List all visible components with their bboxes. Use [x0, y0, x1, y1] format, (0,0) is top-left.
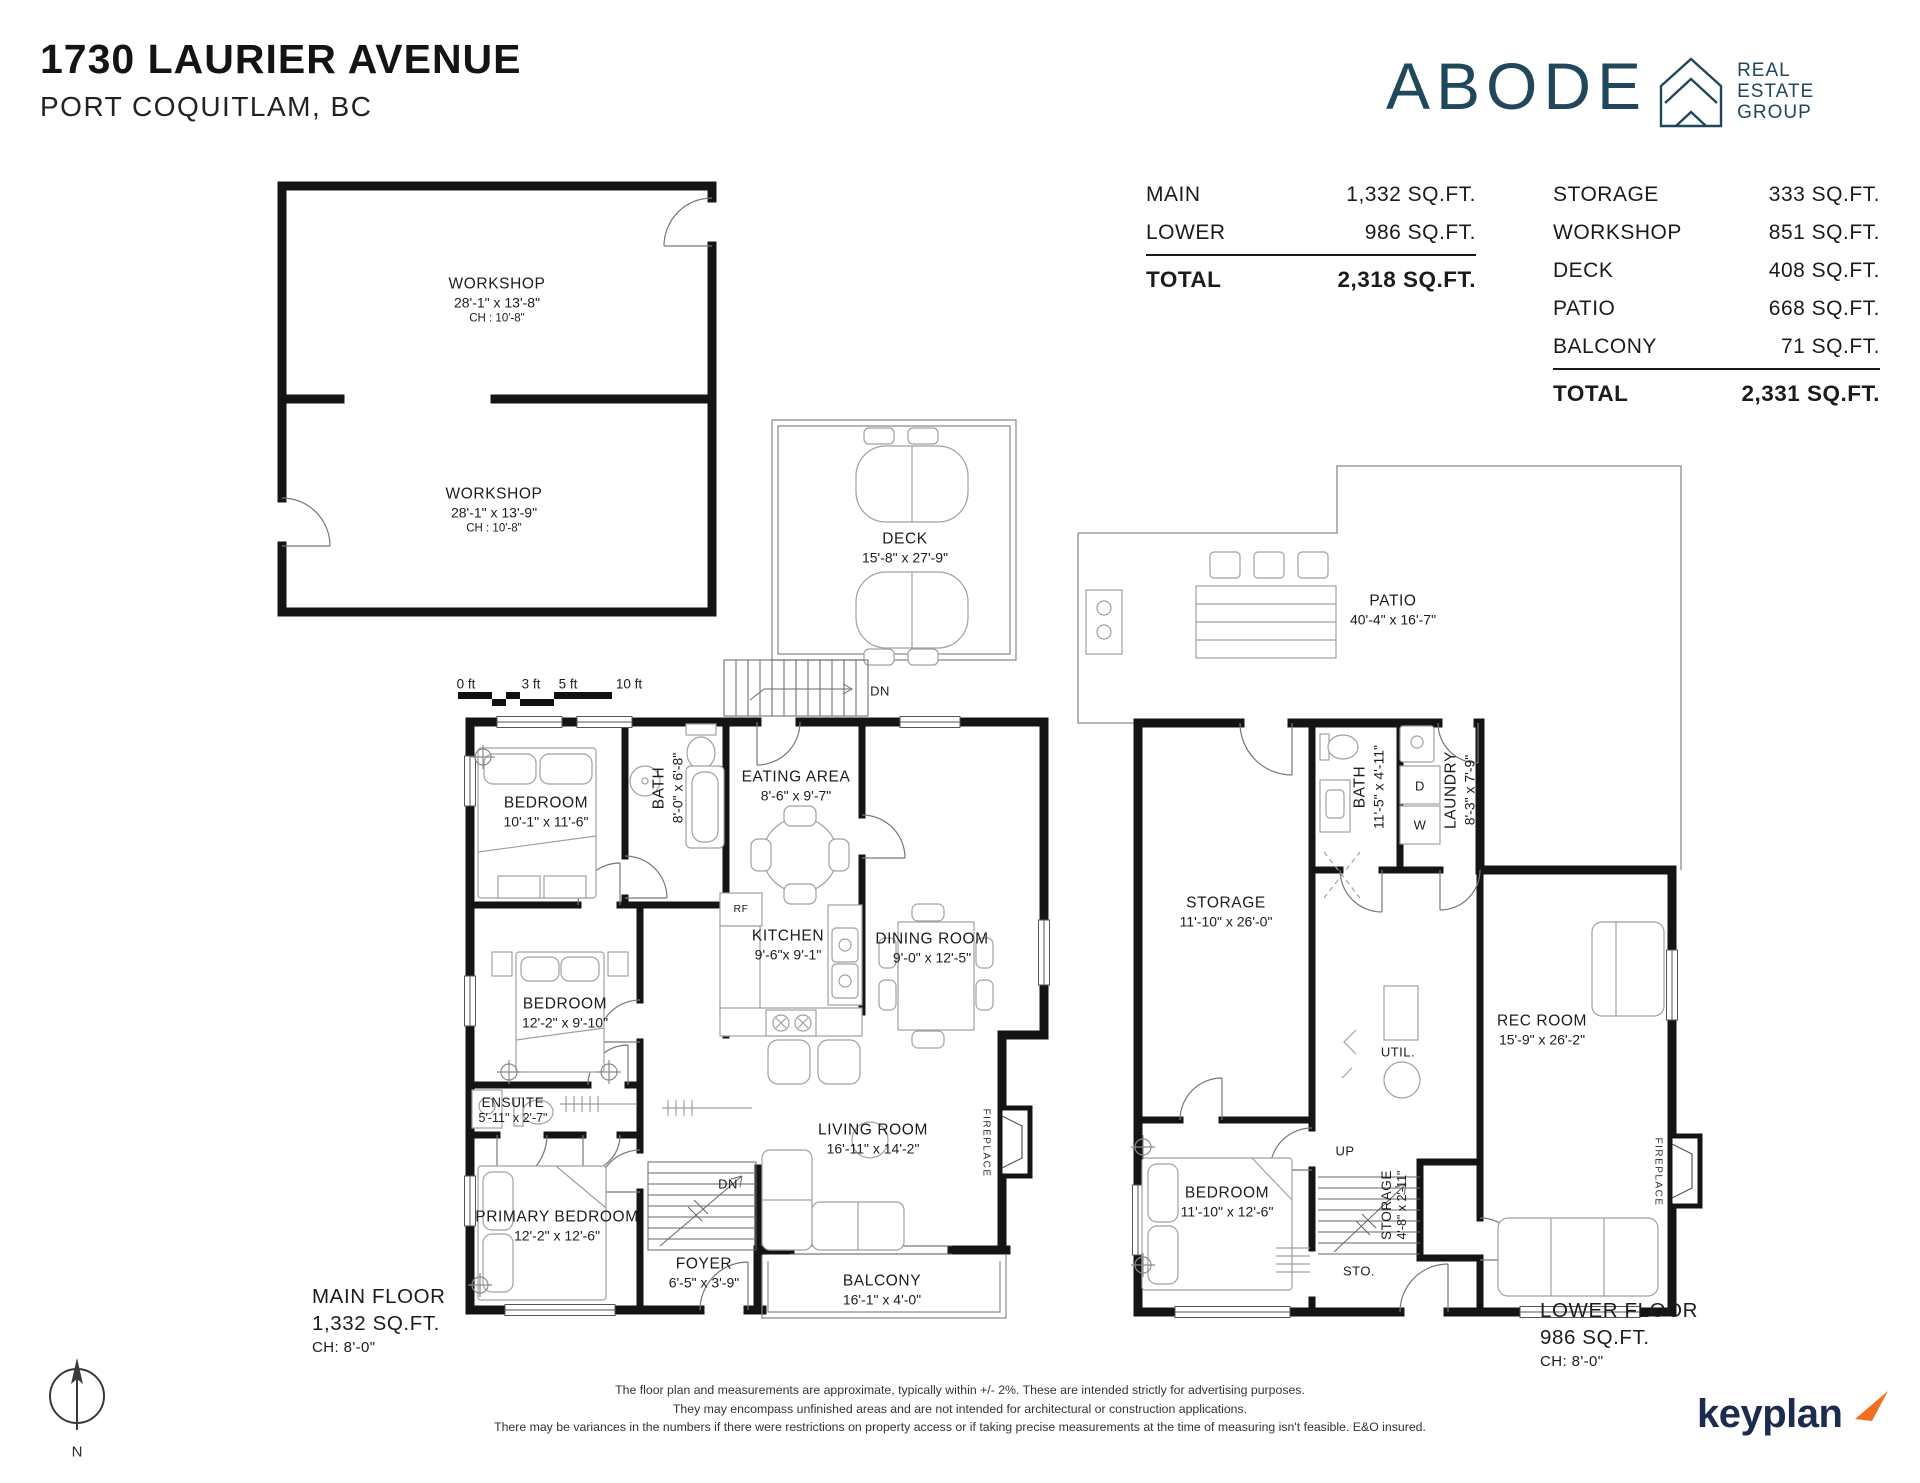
- room-label-storage-lower: STORAGE 11'-10" x 26'-0": [1180, 895, 1273, 930]
- room-name: STORAGE: [1379, 1170, 1394, 1240]
- room-label-deck: DECK 15'-8" x 27'-9": [862, 531, 948, 566]
- brand-tagline: REAL ESTATE GROUP: [1737, 60, 1814, 123]
- dryer-label: D: [1415, 779, 1425, 794]
- room-label-rec-room: REC ROOM 15'-9" x 26'-2": [1497, 1013, 1587, 1048]
- room-dims: 8'-6" x 9'-7": [742, 788, 851, 804]
- room-dims: 10'-1" x 11'-6": [503, 814, 588, 830]
- fridge-label: RF: [734, 903, 749, 915]
- room-name: PATIO: [1350, 593, 1436, 611]
- room-dims: 11'-5" x 4'-11": [1371, 745, 1387, 829]
- room-dims: 11'-10" x 26'-0": [1180, 914, 1273, 930]
- area-table-extras: STORAGE 333 SQ.FT. WORKSHOP 851 SQ.FT. D…: [1553, 176, 1880, 416]
- room-dims: 11'-10" x 12'-6": [1181, 1204, 1274, 1220]
- lower-floor-title: LOWER FLOOR 986 SQ.FT. CH: 8'-0": [1540, 1298, 1698, 1372]
- brand-logo: ABODE REAL ESTATE GROUP: [1386, 46, 1814, 135]
- room-label-foyer: FOYER 6'-5" x 3'-9": [669, 1256, 740, 1291]
- lower-fireplace: [1670, 1136, 1700, 1206]
- room-dims: 16'-1" x 4'-0": [843, 1292, 921, 1308]
- room-label-patio: PATIO 40'-4" x 16'-7": [1350, 593, 1436, 628]
- north-arrow: [50, 1358, 104, 1430]
- room-dims: 15'-9" x 26'-2": [1497, 1032, 1587, 1048]
- foyer-stairs: [648, 1162, 756, 1250]
- table-total-row: TOTAL 2,318 SQ.FT.: [1146, 258, 1476, 302]
- patio-furniture: [1086, 552, 1336, 658]
- washer-label: W: [1414, 818, 1427, 833]
- stairs-up-label: UP: [1335, 1144, 1354, 1159]
- table-row: LOWER 986 SQ.FT.: [1146, 214, 1476, 252]
- room-label-ensuite: ENSUITE 5'-11" x 2'-7": [478, 1095, 547, 1125]
- room-dims: 12'-2" x 9'-10": [522, 1015, 608, 1031]
- table-rule: [1146, 254, 1476, 256]
- stairs-down-label: DN: [870, 684, 890, 699]
- table-row: DECK 408 SQ.FT.: [1553, 252, 1880, 290]
- table-row: BALCONY 71 SQ.FT.: [1553, 328, 1880, 366]
- keyplan-mark: [1855, 1391, 1888, 1421]
- room-name: BEDROOM: [1181, 1185, 1274, 1203]
- room-label-storage-closet: STORAGE 4'-8" x 2'-11": [1379, 1170, 1409, 1240]
- room-label-primary-bedroom: PRIMARY BEDROOM 12'-2" x 12'-6": [475, 1209, 638, 1244]
- room-name: REC ROOM: [1497, 1013, 1587, 1031]
- room-label-balcony: BALCONY 16'-1" x 4'-0": [843, 1273, 921, 1308]
- room-dims: 4'-8" x 2'-11": [1395, 1170, 1409, 1240]
- room-dims: 8'-3" x 7'-9": [1462, 751, 1478, 829]
- room-dims: 9'-0" x 12'-5": [875, 950, 988, 966]
- room-label-bedroom2: BEDROOM 12'-2" x 9'-10": [522, 996, 608, 1031]
- table-rule: [1553, 368, 1880, 370]
- room-label-living-room: LIVING ROOM 16'-11" x 14'-2": [818, 1122, 928, 1157]
- room-name: DINING ROOM: [875, 931, 988, 949]
- disclaimer-line: There may be variances in the numbers if…: [300, 1418, 1620, 1437]
- room-ceiling: CH : 10'-8": [449, 313, 546, 325]
- table-row: WORKSHOP 851 SQ.FT.: [1553, 214, 1880, 252]
- room-dims: 9'-6"x 9'-1": [752, 947, 824, 963]
- room-dims: 28'-1" x 13'-8": [449, 295, 546, 311]
- room-name: KITCHEN: [752, 928, 824, 946]
- room-dims: 16'-11" x 14'-2": [818, 1141, 928, 1157]
- room-label-bedroom1: BEDROOM 10'-1" x 11'-6": [503, 795, 588, 830]
- room-dims: 15'-8" x 27'-9": [862, 550, 948, 566]
- scale-tick: 5 ft: [559, 677, 578, 692]
- deck-stairs: [724, 660, 868, 716]
- table-total-row: TOTAL 2,331 SQ.FT.: [1553, 372, 1880, 416]
- utility-label: UTIL.: [1381, 1045, 1415, 1060]
- room-label-kitchen: KITCHEN 9'-6"x 9'-1": [752, 928, 824, 963]
- room-name: EATING AREA: [742, 769, 851, 787]
- scale-bar: [458, 692, 612, 706]
- room-label-eating-area: EATING AREA 8'-6" x 9'-7": [742, 769, 851, 804]
- scale-tick: 0 ft: [457, 677, 476, 692]
- room-name: WORKSHOP: [446, 486, 543, 504]
- room-name: BEDROOM: [503, 795, 588, 813]
- disclaimer-line: They may encompass unfinished areas and …: [300, 1400, 1620, 1419]
- fireplace-label: FIREPLACE: [981, 1108, 992, 1177]
- room-label-workshop2: WORKSHOP 28'-1" x 13'-9" CH : 10'-8": [446, 486, 543, 535]
- workshop-building: [282, 186, 712, 612]
- room-label-laundry: LAUNDRY 8'-3" x 7'-9": [1443, 751, 1478, 829]
- room-dims: 5'-11" x 2'-7": [478, 1111, 547, 1125]
- keyplan-logo: keyplan: [1697, 1392, 1842, 1437]
- room-name: PRIMARY BEDROOM: [475, 1209, 638, 1227]
- room-dims: 8'-0" x 6'-8": [670, 753, 686, 824]
- room-dims: 40'-4" x 16'-7": [1350, 612, 1436, 628]
- header: 1730 LAURIER AVENUE PORT COQUITLAM, BC: [40, 36, 522, 123]
- room-name: LIVING ROOM: [818, 1122, 928, 1140]
- page-subtitle: PORT COQUITLAM, BC: [40, 91, 522, 123]
- main-fireplace: [1000, 1108, 1030, 1176]
- house-icon: [1657, 56, 1725, 135]
- page-title: 1730 LAURIER AVENUE: [40, 36, 522, 83]
- room-label-bath-main: BATH 8'-0" x 6'-8": [651, 753, 686, 824]
- room-name: FOYER: [669, 1256, 740, 1274]
- room-label-workshop1: WORKSHOP 28'-1" x 13'-8" CH : 10'-8": [449, 276, 546, 325]
- room-ceiling: CH : 10'-8": [446, 523, 543, 535]
- room-name: ENSUITE: [478, 1095, 547, 1110]
- table-row: PATIO 668 SQ.FT.: [1553, 290, 1880, 328]
- table-row: STORAGE 333 SQ.FT.: [1553, 176, 1880, 214]
- room-name: DECK: [862, 531, 948, 549]
- storage-abbrev-label: STO.: [1343, 1264, 1375, 1279]
- brand-name: ABODE: [1386, 46, 1647, 126]
- room-name: BATH: [651, 753, 669, 824]
- disclaimer: The floor plan and measurements are appr…: [300, 1381, 1620, 1437]
- area-table-floors: MAIN 1,332 SQ.FT. LOWER 986 SQ.FT. TOTAL…: [1146, 176, 1476, 302]
- scale-tick: 3 ft: [522, 677, 541, 692]
- room-name: BALCONY: [843, 1273, 921, 1291]
- room-label-dining-room: DINING ROOM 9'-0" x 12'-5": [875, 931, 988, 966]
- room-name: BATH: [1352, 745, 1370, 829]
- disclaimer-line: The floor plan and measurements are appr…: [300, 1381, 1620, 1400]
- room-name: WORKSHOP: [449, 276, 546, 294]
- room-dims: 12'-2" x 12'-6": [475, 1228, 638, 1244]
- fireplace-label: FIREPLACE: [1653, 1137, 1664, 1206]
- table-row: MAIN 1,332 SQ.FT.: [1146, 176, 1476, 214]
- room-dims: 28'-1" x 13'-9": [446, 505, 543, 521]
- main-floor-title: MAIN FLOOR 1,332 SQ.FT. CH: 8'-0": [312, 1284, 446, 1358]
- floor-plan-sheet: 1730 LAURIER AVENUE PORT COQUITLAM, BC A…: [0, 0, 1920, 1483]
- scale-tick: 10 ft: [616, 677, 642, 692]
- room-dims: 6'-5" x 3'-9": [669, 1275, 740, 1291]
- north-label: N: [72, 1444, 83, 1461]
- room-name: BEDROOM: [522, 996, 608, 1014]
- room-name: STORAGE: [1180, 895, 1273, 913]
- room-label-bath-lower: BATH 11'-5" x 4'-11": [1352, 745, 1387, 829]
- stairs-down-label: DN: [718, 1177, 738, 1192]
- room-name: LAUNDRY: [1443, 751, 1461, 829]
- room-label-bedroom-lower: BEDROOM 11'-10" x 12'-6": [1181, 1185, 1274, 1220]
